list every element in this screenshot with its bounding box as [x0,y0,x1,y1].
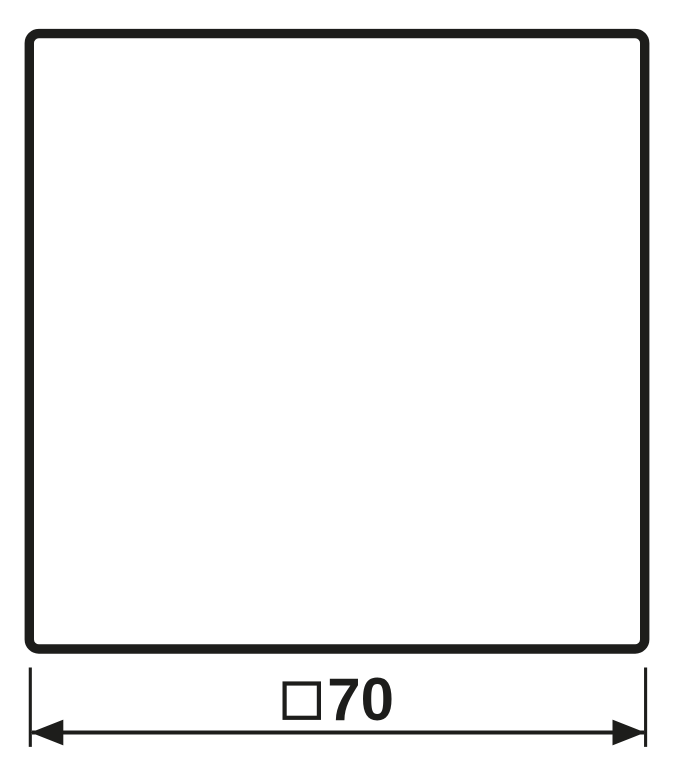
svg-text:70: 70 [327,666,394,733]
